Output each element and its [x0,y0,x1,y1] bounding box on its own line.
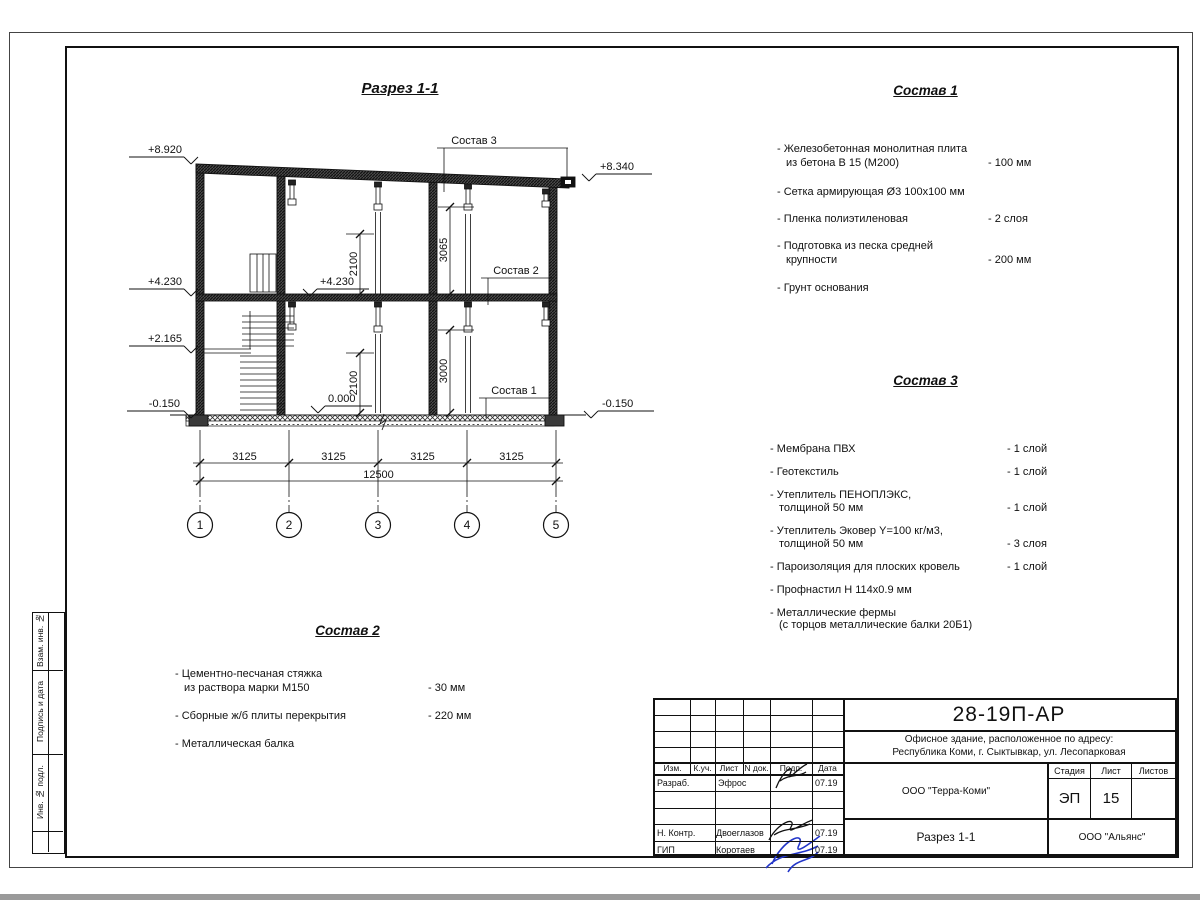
tb-sheet-title: Разрез 1-1 [845,820,1047,854]
dim-12500: 12500 [358,469,399,481]
elevation-marks [127,157,654,418]
list-item-value: - 3 слоя [1007,538,1047,550]
v-dimensions [346,203,474,417]
sostav2-heading: Состав 2 [300,625,395,637]
sostav1-heading: Состав 1 [878,85,973,97]
elevation-4230-inner: +4.230 [320,276,368,288]
tb-stage-value: ЭП [1049,779,1090,818]
side-strip-label-inv: Инв. № подл. [33,754,47,830]
tb-sheets-label: Листов [1132,763,1175,778]
tb-company: ООО "Терра-Коми" [845,764,1047,818]
list-item-value: - 220 мм [428,710,471,722]
grid-bubble-4: 4 [455,519,479,531]
dim-3125-1: 3125 [224,451,265,463]
list-item: - Профнастил Н 114х0.9 мм [770,584,912,596]
list-item-value: - 200 мм [988,254,1031,266]
tb-gip-name: Коротаев [716,844,755,856]
list-item: (с торцов металлические балки 20Б1) [779,619,972,631]
list-item-value: - 1 слой [1007,466,1047,478]
list-item: - Пароизоляция для плоских кровель [770,561,960,573]
tb-gip-label: ГИП [657,844,675,856]
grid-bubble-1: 1 [188,519,212,531]
dim-3125-4: 3125 [491,451,532,463]
list-item: толщиной 50 мм [779,502,863,514]
label-sostav3: Состав 3 [443,135,505,147]
ground-slab-hatch [186,415,554,421]
list-item: - Утеплитель ПЕНОПЛЭКС, [770,489,911,501]
tb-doc-number: 28-19П-АР [843,700,1175,730]
elevation-8340: +8.340 [600,161,654,173]
list-item: крупности [786,254,837,266]
tb-sheet-label: Лист [1091,763,1131,778]
list-item: - Сетка армирующая Ø3 100х100 мм [777,186,965,198]
drawing-title: Разрез 1-1 [340,83,460,95]
dim-2100-upper: 2100 [348,242,360,286]
tb-nkontr-date: 07.19 [815,827,838,839]
tb-col-kuch: К.уч. [690,762,715,774]
list-item: - Металлическая балка [175,738,294,750]
list-item: - Сборные ж/б плиты перекрытия [175,710,346,722]
grid-bubble-5: 5 [544,519,568,531]
sostav3-heading: Состав 3 [878,375,973,387]
dim-3125-2: 3125 [313,451,354,463]
elevation-4230-left: +4.230 [128,276,182,288]
tb-object-line2: Республика Коми, г. Сыктывкар, ул. Лесоп… [843,746,1175,759]
roof-slab [196,164,569,188]
hanger-posts-lower [288,302,550,332]
tb-razrab-name: Эфрос [718,777,746,789]
floor-slab [196,294,557,301]
tb-col-izm: Изм. [655,762,690,774]
foundation-block-right [545,415,564,426]
roof-end-beam-slot [565,180,571,184]
list-item-value: - 2 слоя [988,213,1028,225]
title-block: Изм. К.уч. Лист N док. Подп. Дата Разраб… [653,698,1177,856]
elevation-8920: +8.920 [128,144,182,156]
list-item: - Геотекстиль [770,466,839,478]
tb-stage-label: Стадия [1049,763,1090,778]
tb-nkontr-name: Двоеглазов [716,827,764,839]
list-item: - Грунт основания [777,282,869,294]
list-item: толщиной 50 мм [779,538,863,550]
dim-3125-3: 3125 [402,451,443,463]
tb-razrab-label: Разраб. [657,777,689,789]
dim-3065: 3065 [438,228,450,272]
list-item-value: - 30 мм [428,682,465,694]
list-item: - Цементно-песчаная стяжка [175,668,322,680]
list-item: - Мембрана ПВХ [770,443,855,455]
side-strip-label-podpis: Подпись и дата [33,670,47,753]
list-item: из раствора марки М150 [184,682,309,694]
tb-col-ndok: N док. [743,762,770,774]
tb-gip-date: 07.19 [815,844,838,856]
list-item-value: - 1 слой [1007,502,1047,514]
elevation-minus0150-left: -0.150 [126,398,180,410]
tb-sheets-value [1132,779,1175,818]
dim-2100-lower: 2100 [348,361,360,405]
list-item-value: - 100 мм [988,157,1031,169]
tb-col-data: Дата [812,762,843,774]
tb-nkontr-label: Н. Контр. [657,827,695,839]
dim-3000: 3000 [438,349,450,393]
list-item-value: - 1 слой [1007,443,1047,455]
tb-sheet-value: 15 [1091,779,1131,818]
list-item-value: - 1 слой [1007,561,1047,573]
elevation-2165: +2.165 [128,333,182,345]
elevation-minus0150-right: -0.150 [602,398,656,410]
tb-contractor: ООО "Альянс" [1049,820,1175,854]
tb-col-podp: Подп. [770,762,812,774]
label-sostav1: Состав 1 [485,385,543,397]
tb-razrab-date: 07.19 [815,777,838,789]
tb-object-line1: Офисное здание, расположенное по адресу: [843,733,1175,746]
label-sostav2: Состав 2 [487,265,545,277]
grid-bubble-3: 3 [366,519,390,531]
list-item: - Утеплитель Эковер Y=100 кг/м3, [770,525,943,537]
list-item: - Железобетонная монолитная плита [777,143,967,155]
tb-col-list: Лист [715,762,743,774]
list-item: из бетона В 15 (М200) [786,157,899,169]
grid-bubble-2: 2 [277,519,301,531]
side-strip-label-vzam: Взам. инв. № [33,613,47,668]
drawing-sheet: Разрез 1-1 Состав 3 Состав 2 Состав 1 +8… [0,0,1200,900]
list-item: - Пленка полиэтиленовая [777,213,908,225]
list-item: - Металлические фермы [770,607,896,619]
list-item: - Подготовка из песка средней [777,240,933,252]
